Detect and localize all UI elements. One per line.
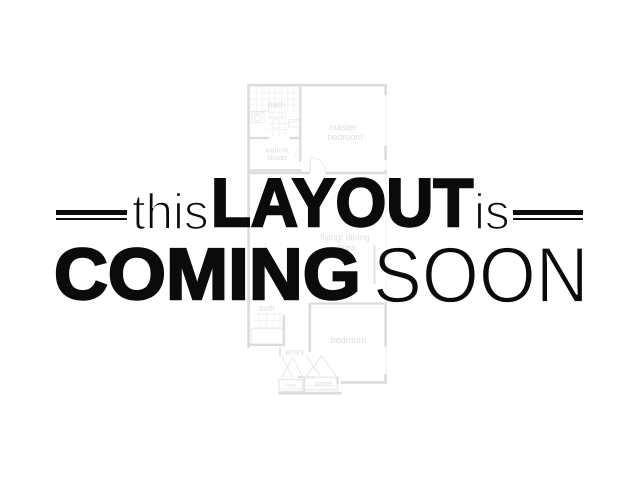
svg-text:bath: bath <box>268 100 286 110</box>
svg-text:closet: closet <box>315 381 332 388</box>
svg-text:closet: closet <box>267 153 288 162</box>
svg-text:master: master <box>329 123 357 133</box>
svg-text:closet: closet <box>284 382 297 387</box>
svg-text:bedroom: bedroom <box>331 335 367 345</box>
svg-text:bedroom: bedroom <box>327 132 363 142</box>
svg-text:entry: entry <box>286 347 306 357</box>
